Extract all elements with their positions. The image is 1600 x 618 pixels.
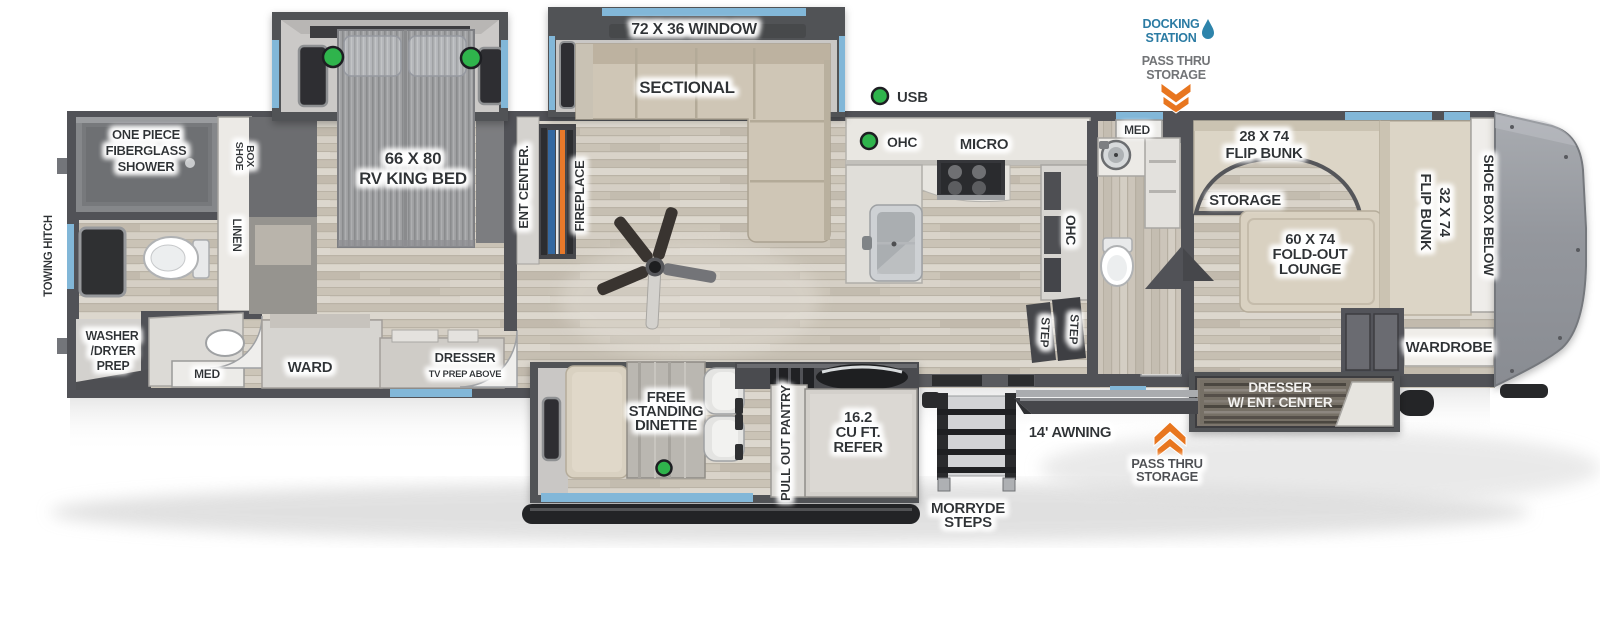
svg-text:32 X 74: 32 X 74: [1436, 187, 1453, 238]
svg-text:STEP: STEP: [1066, 314, 1082, 345]
svg-text:TOWING HITCH: TOWING HITCH: [43, 215, 55, 297]
svg-text:STEP: STEP: [1037, 317, 1053, 348]
svg-text:STEPS: STEPS: [944, 514, 992, 531]
svg-text:STATION: STATION: [1146, 31, 1197, 45]
svg-text:STORAGE: STORAGE: [1146, 68, 1206, 82]
svg-text:OHC: OHC: [1063, 215, 1079, 245]
svg-text:LINEN: LINEN: [230, 218, 242, 251]
svg-text:W/ ENT. CENTER: W/ ENT. CENTER: [1228, 395, 1333, 410]
svg-text:/DRYER: /DRYER: [91, 344, 136, 358]
svg-text:SHOWER: SHOWER: [118, 159, 176, 174]
svg-text:STORAGE: STORAGE: [1136, 469, 1199, 484]
svg-text:MED: MED: [194, 367, 220, 381]
svg-text:FIBERGLASS: FIBERGLASS: [106, 143, 187, 158]
svg-text:TV PREP ABOVE: TV PREP ABOVE: [429, 369, 502, 380]
svg-text:USB: USB: [897, 89, 928, 106]
svg-text:FLIP BUNK: FLIP BUNK: [1417, 173, 1434, 250]
svg-text:72 X 36 WINDOW: 72 X 36 WINDOW: [631, 21, 758, 38]
svg-text:WARDROBE: WARDROBE: [1406, 339, 1493, 356]
svg-text:28 X 74: 28 X 74: [1239, 128, 1290, 145]
svg-text:FIREPLACE: FIREPLACE: [572, 160, 587, 232]
svg-text:PULL OUT PANTRY: PULL OUT PANTRY: [778, 384, 793, 500]
svg-text:DRESSER: DRESSER: [435, 350, 497, 365]
svg-text:WASHER: WASHER: [85, 329, 138, 343]
svg-text:DOCKING: DOCKING: [1143, 17, 1200, 31]
svg-text:WARD: WARD: [288, 359, 333, 376]
svg-text:RV KING BED: RV KING BED: [359, 169, 467, 188]
svg-text:SHOE BOX BELOW: SHOE BOX BELOW: [1481, 154, 1496, 276]
svg-text:14' AWNING: 14' AWNING: [1029, 424, 1112, 441]
svg-text:66 X 80: 66 X 80: [385, 149, 442, 168]
svg-text:FLIP BUNK: FLIP BUNK: [1225, 145, 1302, 162]
svg-text:LOUNGE: LOUNGE: [1279, 261, 1342, 278]
svg-text:OHC: OHC: [887, 134, 917, 150]
svg-text:PASS THRU: PASS THRU: [1142, 54, 1211, 68]
svg-text:DINETTE: DINETTE: [635, 417, 697, 434]
svg-text:ENT CENTER.: ENT CENTER.: [516, 145, 531, 228]
svg-text:BOX: BOX: [244, 145, 256, 167]
svg-text:STORAGE: STORAGE: [1209, 192, 1281, 209]
svg-text:MED: MED: [1124, 123, 1150, 137]
svg-text:SHOE: SHOE: [233, 142, 245, 171]
svg-text:PREP: PREP: [97, 359, 130, 373]
svg-text:REFER: REFER: [833, 439, 883, 456]
svg-text:MICRO: MICRO: [960, 136, 1009, 153]
svg-text:DRESSER: DRESSER: [1248, 380, 1312, 395]
svg-text:ONE PIECE: ONE PIECE: [112, 127, 181, 142]
svg-text:SECTIONAL: SECTIONAL: [639, 78, 735, 97]
